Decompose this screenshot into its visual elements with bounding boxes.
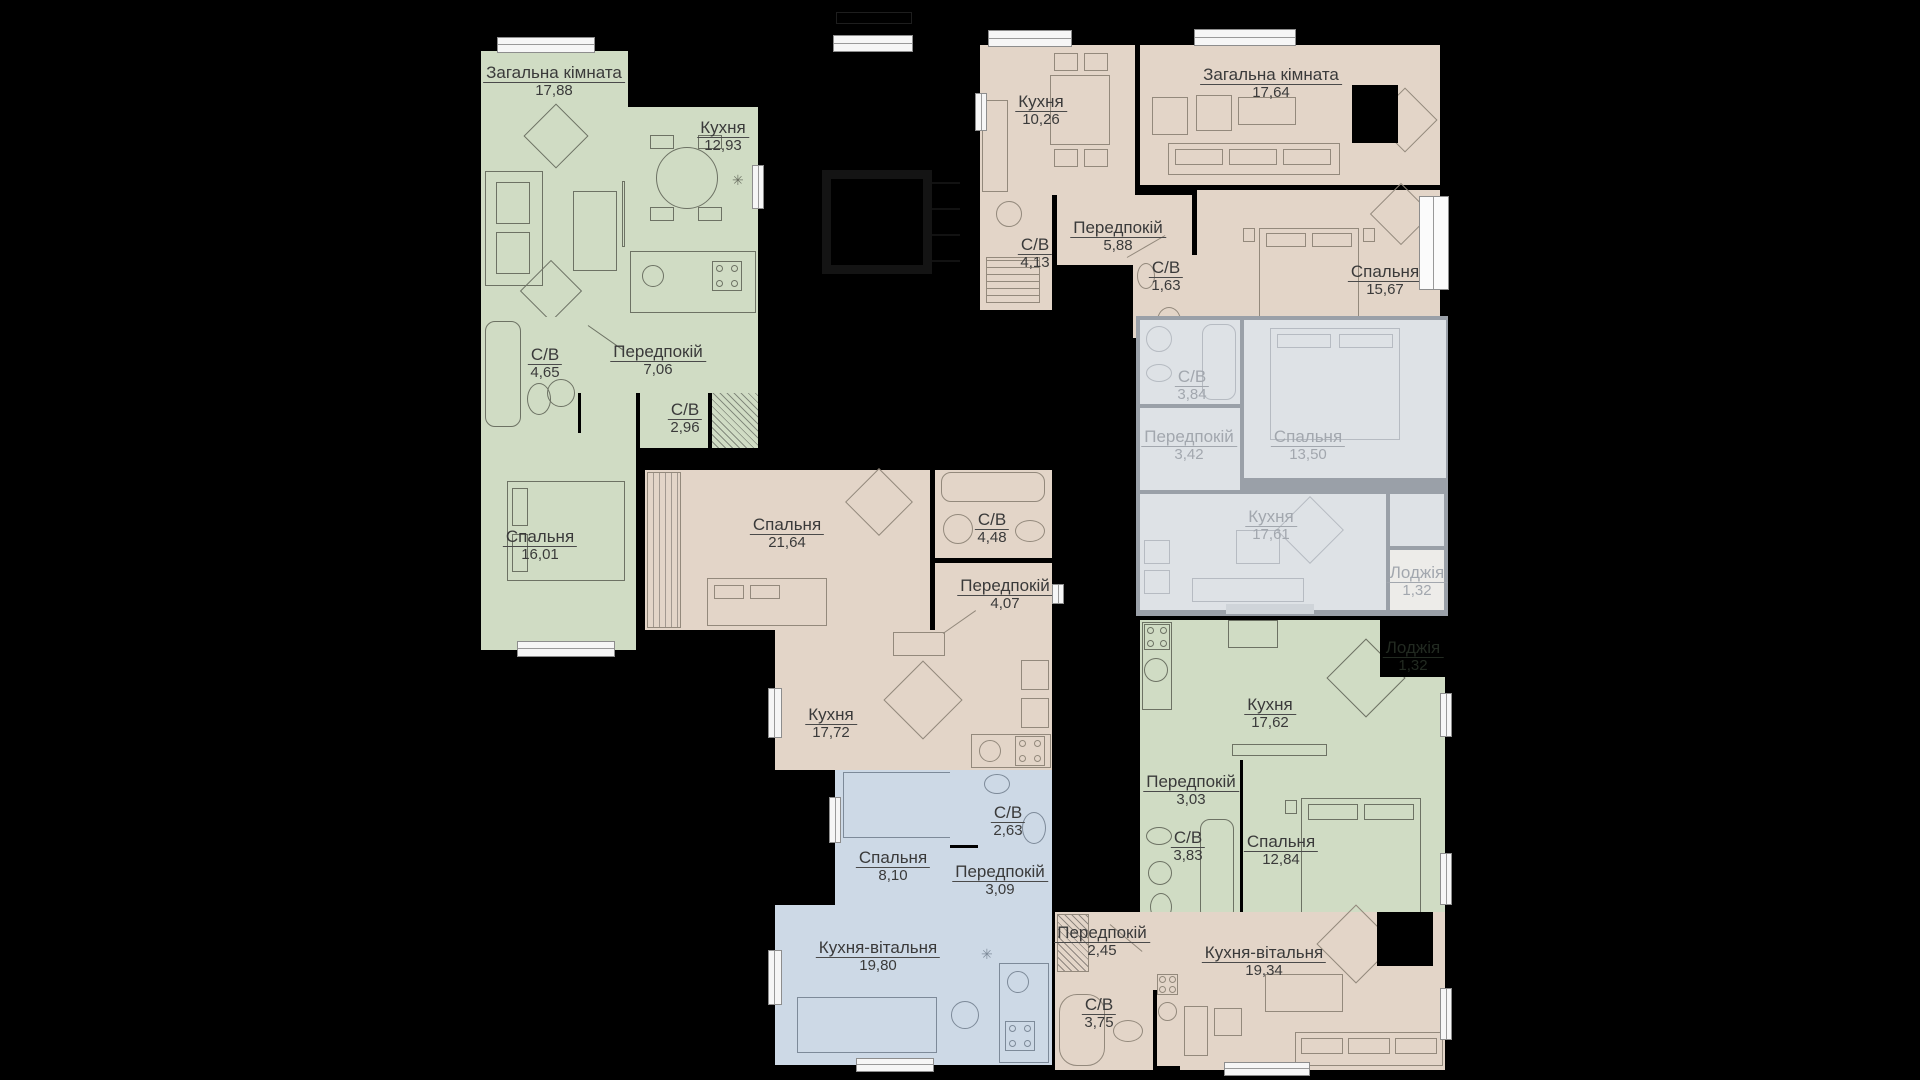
stair-step <box>932 208 960 210</box>
closet-hatch <box>712 393 758 448</box>
room-name: С/В <box>668 400 702 420</box>
room-bedroom: Спальня 12,84 <box>1243 760 1445 927</box>
bathtub-icon <box>485 321 521 427</box>
room-name: Спальня <box>1271 427 1345 447</box>
room-hallway: Передпокій 3,42 <box>1140 408 1240 490</box>
armchair-icon <box>1152 97 1188 135</box>
room-name: Передпокій <box>1070 218 1166 238</box>
room-name: С/В <box>1175 367 1209 387</box>
stool-icon <box>951 1001 979 1029</box>
chair-icon <box>1144 570 1170 594</box>
room-name: С/В <box>991 803 1025 823</box>
room-name: Спальня <box>856 848 930 868</box>
window-marker <box>1194 29 1296 46</box>
room-area: 3,83 <box>1171 848 1205 865</box>
room-bathroom: С/В 3,84 <box>1140 320 1240 404</box>
window-marker <box>975 93 987 131</box>
room-bedroom: Спальня 8,10 <box>835 770 950 905</box>
stair-step <box>932 182 960 184</box>
chair-icon <box>650 135 674 149</box>
chair-icon <box>650 207 674 221</box>
room-name: Передпокій <box>1054 923 1150 943</box>
window-marker <box>1224 1062 1310 1076</box>
room-area: 19,34 <box>1202 963 1326 980</box>
room-area: 10,26 <box>1015 112 1067 129</box>
window-marker <box>1440 693 1452 737</box>
stairwell-core <box>822 170 932 274</box>
kitchen-appliance-strip <box>1157 970 1180 1066</box>
stair-step <box>932 260 960 262</box>
window-marker <box>517 641 615 657</box>
room-bedroom: Спальня 13,50 <box>1244 320 1446 478</box>
dark-loggia: Лоджія 1,32 <box>1380 620 1445 677</box>
vent-icon: ✳ <box>732 173 744 187</box>
room-name: С/В <box>1082 995 1116 1015</box>
room-bathroom: С/В 4,13 <box>980 195 1052 310</box>
window-marker <box>829 797 841 843</box>
room-area: 7,06 <box>610 362 706 379</box>
room-area: 12,93 <box>697 138 749 155</box>
room-area: 17,72 <box>805 725 857 742</box>
vent-icon: ✳ <box>981 947 993 961</box>
sink-icon <box>1146 364 1172 382</box>
stove-icon <box>1144 624 1170 650</box>
nightstand-icon <box>1363 228 1375 242</box>
room-bedroom: Спальня 15,67 <box>1197 190 1440 320</box>
window-marker <box>768 688 782 738</box>
bed-icon <box>1301 798 1421 926</box>
gray-apartment-shell: С/В 3,84 Передпокій 3,42 Спальня 13,50 <box>1136 316 1448 616</box>
room-name: С/В <box>975 510 1009 530</box>
nightstand-icon <box>1243 228 1255 242</box>
desk-icon <box>1184 1006 1208 1056</box>
stove-icon <box>1005 1021 1035 1051</box>
room-area: 8,10 <box>856 868 930 885</box>
table-icon <box>797 997 937 1053</box>
window-marker <box>833 35 913 52</box>
window-marker <box>1052 584 1064 604</box>
room-name: Кухня <box>1015 92 1067 112</box>
room-kitchen: Кухня 10,26 <box>980 45 1135 195</box>
sink-icon <box>1146 827 1172 845</box>
room-kitchen: Кухня 17,72 <box>775 630 1052 770</box>
dining-table-icon <box>656 147 718 209</box>
room-name: С/В <box>1171 828 1205 848</box>
chair-icon <box>1084 149 1108 167</box>
passage <box>581 393 636 437</box>
sofa-icon <box>1295 1032 1443 1066</box>
room-name: С/В <box>1018 235 1052 255</box>
chair-icon <box>1054 53 1078 71</box>
room-area: 4,65 <box>528 365 562 382</box>
room-area: 1,32 <box>1387 583 1448 600</box>
room-hallway: Передпокій 3,03 <box>1140 760 1240 815</box>
room-area: 17,64 <box>1200 85 1342 102</box>
chair-icon <box>1144 540 1170 564</box>
window-marker <box>1440 988 1452 1040</box>
room-name: Передпокій <box>957 576 1053 596</box>
room-area: 2,45 <box>1054 943 1150 960</box>
washer-icon <box>1148 861 1172 885</box>
sink-icon <box>1158 1002 1177 1021</box>
room-name: Загальна кімната <box>483 63 625 83</box>
window-marker <box>856 1058 934 1072</box>
sink-icon <box>1144 658 1168 682</box>
room-area: 4,48 <box>975 530 1009 547</box>
chair-icon <box>1021 698 1049 728</box>
washer-icon <box>1146 326 1172 352</box>
room-bathroom: С/В 4,48 <box>935 470 1052 558</box>
room-name: Кухня <box>805 705 857 725</box>
washer-icon <box>943 514 973 544</box>
window-marker <box>752 165 764 209</box>
room-name: Кухня <box>1244 695 1296 715</box>
room-area: 3,09 <box>952 882 1048 899</box>
room-area: 16,01 <box>503 547 577 564</box>
room-name: С/В <box>1149 258 1183 278</box>
tv-bench-icon <box>1232 744 1327 756</box>
sink-icon <box>979 740 1001 762</box>
toilet-icon <box>1022 812 1046 844</box>
bathtub-icon <box>941 472 1045 502</box>
stove-icon <box>712 261 742 291</box>
room-bathroom: С/В 3,75 <box>1055 990 1153 1070</box>
room-name: Лоджія <box>1387 563 1448 583</box>
armchair-icon <box>883 660 962 739</box>
tv-icon <box>622 181 625 247</box>
room-name: Спальня <box>750 515 824 535</box>
sink-icon <box>642 265 664 287</box>
room-name: Кухня-вітальня <box>816 938 940 958</box>
stair-step <box>932 234 960 236</box>
window-marker <box>1226 604 1314 614</box>
room-area: 3,84 <box>1175 387 1209 404</box>
sink-icon <box>984 774 1010 794</box>
passage <box>950 770 978 845</box>
room-area: 17,62 <box>1244 715 1296 732</box>
room-bathroom: С/В 3,83 <box>1140 815 1240 927</box>
room-name: Спальня <box>1348 262 1422 282</box>
room-hallway: Передпокій 7,06 <box>578 317 758 393</box>
washer-icon <box>547 379 575 407</box>
bed-icon <box>707 578 827 626</box>
table-icon <box>893 632 945 656</box>
room-area: 2,96 <box>668 420 702 437</box>
room-area: 21,64 <box>750 535 824 552</box>
window-marker <box>1440 853 1452 905</box>
sofa-icon <box>485 171 543 286</box>
room-area: 4,07 <box>957 596 1053 613</box>
window-marker <box>988 30 1072 47</box>
room-area: 1,32 <box>1383 658 1444 675</box>
sink-icon <box>1113 1020 1143 1042</box>
room-area: 12,84 <box>1244 852 1318 869</box>
bed-icon <box>1259 228 1359 318</box>
room-area: 15,67 <box>1348 282 1422 299</box>
room-bathroom: С/В 2,63 <box>978 770 1052 848</box>
room-area: 17,88 <box>483 83 625 100</box>
chair-icon <box>698 207 722 221</box>
nightstand-icon <box>1285 800 1297 814</box>
sink-icon <box>1007 971 1029 993</box>
room-area: 4,13 <box>1018 255 1052 272</box>
room-name: Передпокій <box>610 342 706 362</box>
room-name: С/В <box>528 345 562 365</box>
room-kitchen-ext <box>1390 494 1444 546</box>
room-kitchen: Кухня 12,93 ✳ <box>628 107 758 317</box>
sink-icon <box>1015 520 1045 542</box>
room-bedroom: Спальня 21,64 <box>645 470 930 630</box>
chair-icon <box>1214 1008 1242 1036</box>
chair-icon <box>1021 660 1049 690</box>
room-name: Загальна кімната <box>1200 65 1342 85</box>
table-icon <box>1228 620 1278 648</box>
chair-icon <box>1084 53 1108 71</box>
window-marker <box>768 950 782 1005</box>
room-kitchen: Кухня 17,61 <box>1140 494 1386 610</box>
wardrobe-hatch <box>647 472 681 628</box>
room-area: 3,75 <box>1082 1015 1116 1032</box>
room-name: Спальня <box>503 527 577 547</box>
balcony <box>1419 196 1449 290</box>
tv-bench-icon <box>1192 578 1304 602</box>
bed-icon <box>1270 328 1400 440</box>
room-name: Кухня <box>1245 507 1297 527</box>
room-kitchen-living: Кухня-вітальня 19,80 ✳ <box>775 905 1052 1065</box>
room-loggia: Лоджія 1,32 <box>1390 550 1444 610</box>
washer-icon <box>996 201 1022 227</box>
room-area: 3,42 <box>1141 447 1237 464</box>
chair-icon <box>1054 149 1078 167</box>
room-bathroom: С/В 4,65 <box>481 317 578 433</box>
room-name: Передпокій <box>1143 772 1239 792</box>
room-area: 13,50 <box>1271 447 1345 464</box>
room-area: 2,63 <box>991 823 1025 840</box>
stove-icon <box>1157 974 1178 995</box>
room-bathroom-2: С/В 2,96 <box>640 393 708 448</box>
armchair-icon <box>523 103 588 168</box>
room-name: Лоджія <box>1383 638 1444 658</box>
room-name: Передпокій <box>1141 427 1237 447</box>
core-outline <box>836 12 912 24</box>
room-area: 17,61 <box>1245 527 1297 544</box>
room-area: 3,03 <box>1143 792 1239 809</box>
plan-notch <box>1377 912 1433 966</box>
room-name: Спальня <box>1244 832 1318 852</box>
room-name: Кухня-вітальня <box>1202 943 1326 963</box>
armchair-icon <box>845 468 913 536</box>
room-area: 1,63 <box>1149 278 1183 295</box>
room-living: Загальна кімната 17,88 <box>481 51 628 317</box>
floor-plan: Загальна кімната 17,88 Кухня 12,93 ✳ <box>0 0 1920 1080</box>
room-bedroom: Спальня 16,01 <box>481 433 636 650</box>
room-hallway: Передпокій 3,09 <box>950 848 1052 905</box>
room-area: 5,88 <box>1070 238 1166 255</box>
room-name: Передпокій <box>952 862 1048 882</box>
stove-icon <box>1015 736 1045 766</box>
sofa-icon <box>1168 143 1340 175</box>
room-name: Кухня <box>697 118 749 138</box>
window-marker <box>497 37 595 53</box>
coffee-table-icon <box>573 191 617 271</box>
room-area: 19,80 <box>816 958 940 975</box>
plan-notch <box>1352 85 1398 143</box>
